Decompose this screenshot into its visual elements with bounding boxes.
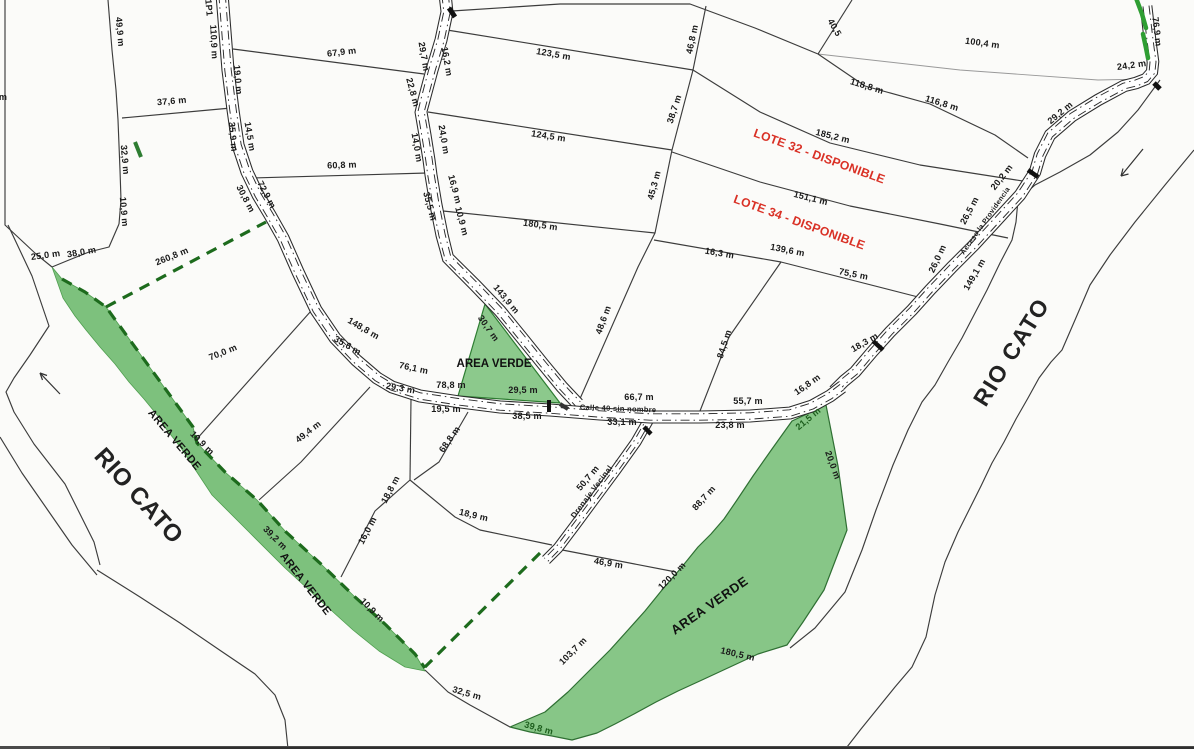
svg-text:60,8 m: 60,8 m bbox=[327, 159, 357, 170]
svg-text:m: m bbox=[0, 92, 7, 102]
svg-text:110,9 m: 110,9 m bbox=[208, 24, 220, 59]
svg-text:38,5 m: 38,5 m bbox=[512, 411, 542, 421]
svg-text:1P1: 1P1 bbox=[203, 0, 214, 17]
svg-text:29,5 m: 29,5 m bbox=[508, 385, 538, 395]
svg-text:23,8 m: 23,8 m bbox=[715, 420, 745, 430]
svg-text:AREA VERDE: AREA VERDE bbox=[457, 358, 532, 370]
svg-text:19,5 m: 19,5 m bbox=[431, 404, 461, 414]
svg-text:78,8 m: 78,8 m bbox=[436, 380, 466, 390]
svg-text:33,1 m: 33,1 m bbox=[607, 417, 637, 427]
svg-text:55,7 m: 55,7 m bbox=[733, 396, 763, 406]
svg-text:66,7 m: 66,7 m bbox=[624, 392, 654, 402]
